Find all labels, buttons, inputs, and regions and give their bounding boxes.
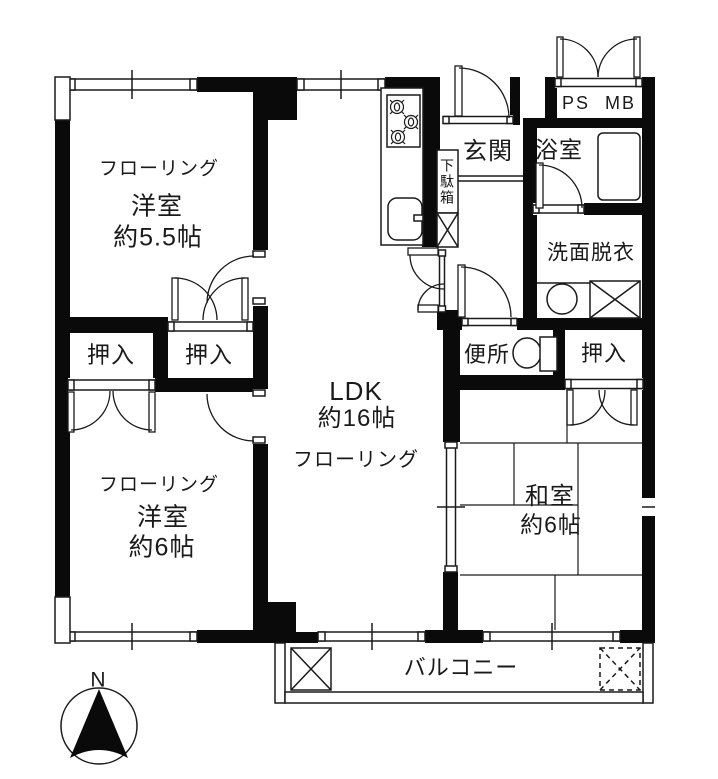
toilet-door bbox=[458, 265, 511, 317]
bedroom1-door-opening bbox=[253, 250, 268, 306]
sink-tap-icon bbox=[414, 215, 423, 221]
oshiire2-label: 押入 bbox=[185, 344, 233, 367]
ldk-size-label: 約16帖 bbox=[318, 407, 397, 431]
washitsu-name-label: 和室 bbox=[525, 485, 575, 509]
floor-plan: フローリング 洋室 約5.5帖 押入 押入 フローリング 洋室 約6帖 LDK … bbox=[0, 0, 718, 779]
oshiire2-double-door bbox=[172, 278, 248, 320]
balcony-hatch-solid bbox=[291, 648, 331, 690]
bedroom2-door bbox=[207, 394, 254, 441]
toilet-door-threshold bbox=[462, 317, 517, 327]
ps-mb-label: PS MB bbox=[562, 94, 636, 112]
oshiire3-front-frame bbox=[565, 378, 643, 390]
wash-basin-icon bbox=[547, 284, 577, 314]
north-compass bbox=[61, 688, 137, 764]
kitchen-counter bbox=[381, 88, 423, 245]
front-door bbox=[455, 66, 509, 118]
oshiire2-front-frame bbox=[168, 320, 253, 333]
washroom-fixtures bbox=[537, 281, 640, 318]
tatami-grid bbox=[460, 390, 642, 630]
bedroom2-size-label: 約6帖 bbox=[129, 536, 196, 561]
bedroom2-flooring-label: フローリング bbox=[99, 476, 219, 495]
north-label: N bbox=[90, 670, 105, 691]
getabako-label: 下駄箱 bbox=[440, 158, 454, 206]
front-door-threshold bbox=[443, 115, 513, 125]
window-bedroom1-top bbox=[68, 70, 197, 99]
window-kitchen-top bbox=[297, 70, 385, 99]
genkan-label: 玄関 bbox=[463, 140, 513, 164]
ldk-name-label: LDK bbox=[329, 378, 383, 404]
balcony-hatch-dashed bbox=[600, 648, 640, 690]
bathroom-label: 浴室 bbox=[535, 139, 583, 162]
window-washitsu-bottom bbox=[483, 623, 620, 650]
psmb-front-frame bbox=[555, 77, 642, 88]
oshiire3-double-door bbox=[567, 390, 637, 425]
oshiire1-label: 押入 bbox=[87, 344, 135, 367]
genkan-step-line bbox=[458, 176, 523, 181]
oshiire3-label: 押入 bbox=[581, 343, 627, 365]
bath-door bbox=[536, 163, 582, 208]
bedroom1-flooring-label: フローリング bbox=[99, 160, 219, 179]
bedroom2-door-opening bbox=[253, 389, 268, 444]
window-ldk-bottom bbox=[318, 623, 425, 650]
oshiire1-front-frame bbox=[68, 378, 155, 392]
psmb-double-door bbox=[557, 37, 640, 77]
washroom-label: 洗面脱衣 bbox=[547, 243, 635, 264]
oshiire1-double-door bbox=[68, 391, 155, 432]
bedroom2-name-label: 洋室 bbox=[137, 506, 189, 531]
toilet-label: 便所 bbox=[464, 344, 510, 366]
ldk-flooring-label: フローリング bbox=[293, 450, 419, 470]
balcony-label: バルコニー bbox=[404, 657, 519, 679]
toilet-bowl-icon bbox=[513, 337, 557, 371]
window-washitsu-right-gap bbox=[642, 498, 655, 516]
bathtub-icon bbox=[598, 133, 640, 200]
left-wall-white-segment-top bbox=[55, 77, 70, 120]
hall-ldk-door-frame bbox=[438, 250, 446, 312]
bedroom1-name-label: 洋室 bbox=[131, 195, 183, 220]
north-arrow-icon bbox=[70, 689, 128, 758]
left-wall-white-segment-bottom bbox=[55, 597, 70, 643]
window-bedroom2-bottom bbox=[68, 623, 197, 650]
bedroom1-size-label: 約5.5帖 bbox=[113, 226, 203, 251]
washitsu-size-label: 約6帖 bbox=[520, 514, 582, 537]
washitsu-sliding-door bbox=[437, 442, 465, 572]
